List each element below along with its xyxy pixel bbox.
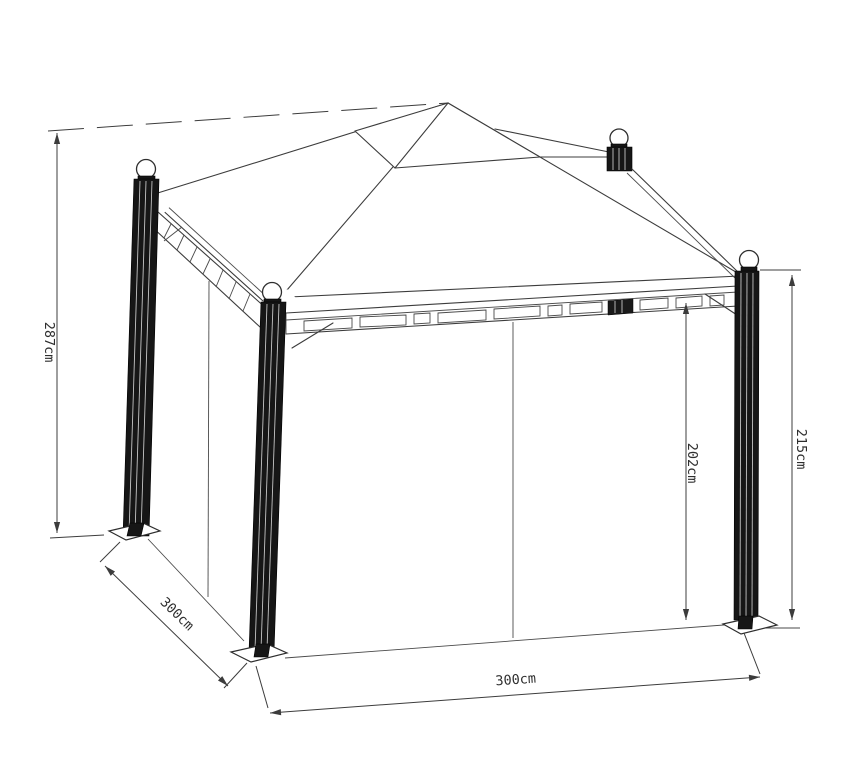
dimension-side-depth: 300cm (100, 542, 247, 688)
dimension-label-215: 215cm (793, 429, 809, 470)
post-back-left (109, 160, 160, 541)
post-back-right (607, 129, 632, 171)
beam-bracket-block (608, 299, 633, 315)
curtain-front-wall (285, 322, 800, 658)
roof-canopy (148, 103, 741, 290)
drawing-svg: 287cm 300cm 300cm 202cm 215cm (0, 0, 842, 768)
gazebo-technical-drawing: 287cm 300cm 300cm 202cm 215cm (0, 0, 842, 768)
beam-front-lattice (286, 286, 738, 348)
dimension-label-287: 287cm (41, 322, 57, 363)
dimension-label-300-depth: 300cm (157, 594, 197, 634)
dimension-label-202: 202cm (684, 443, 700, 484)
ball-finial-back-left (137, 160, 156, 179)
dimension-clearance-height: 202cm (684, 303, 700, 620)
dimension-total-height: 287cm (41, 133, 104, 538)
dimension-post-height: 215cm (760, 270, 809, 620)
curtain-left-split (208, 281, 209, 597)
ball-finial-front-right (740, 251, 759, 270)
post-front-left (231, 283, 287, 663)
dimension-front-width: 300cm (256, 633, 760, 713)
post-front-right (723, 251, 777, 635)
ball-finial-front-left (263, 283, 282, 302)
dimension-label-300-width: 300cm (495, 671, 537, 690)
corner-brace-back-left (164, 227, 182, 241)
curtain-left-wall (148, 281, 244, 641)
corner-brace-front-left (292, 323, 333, 348)
